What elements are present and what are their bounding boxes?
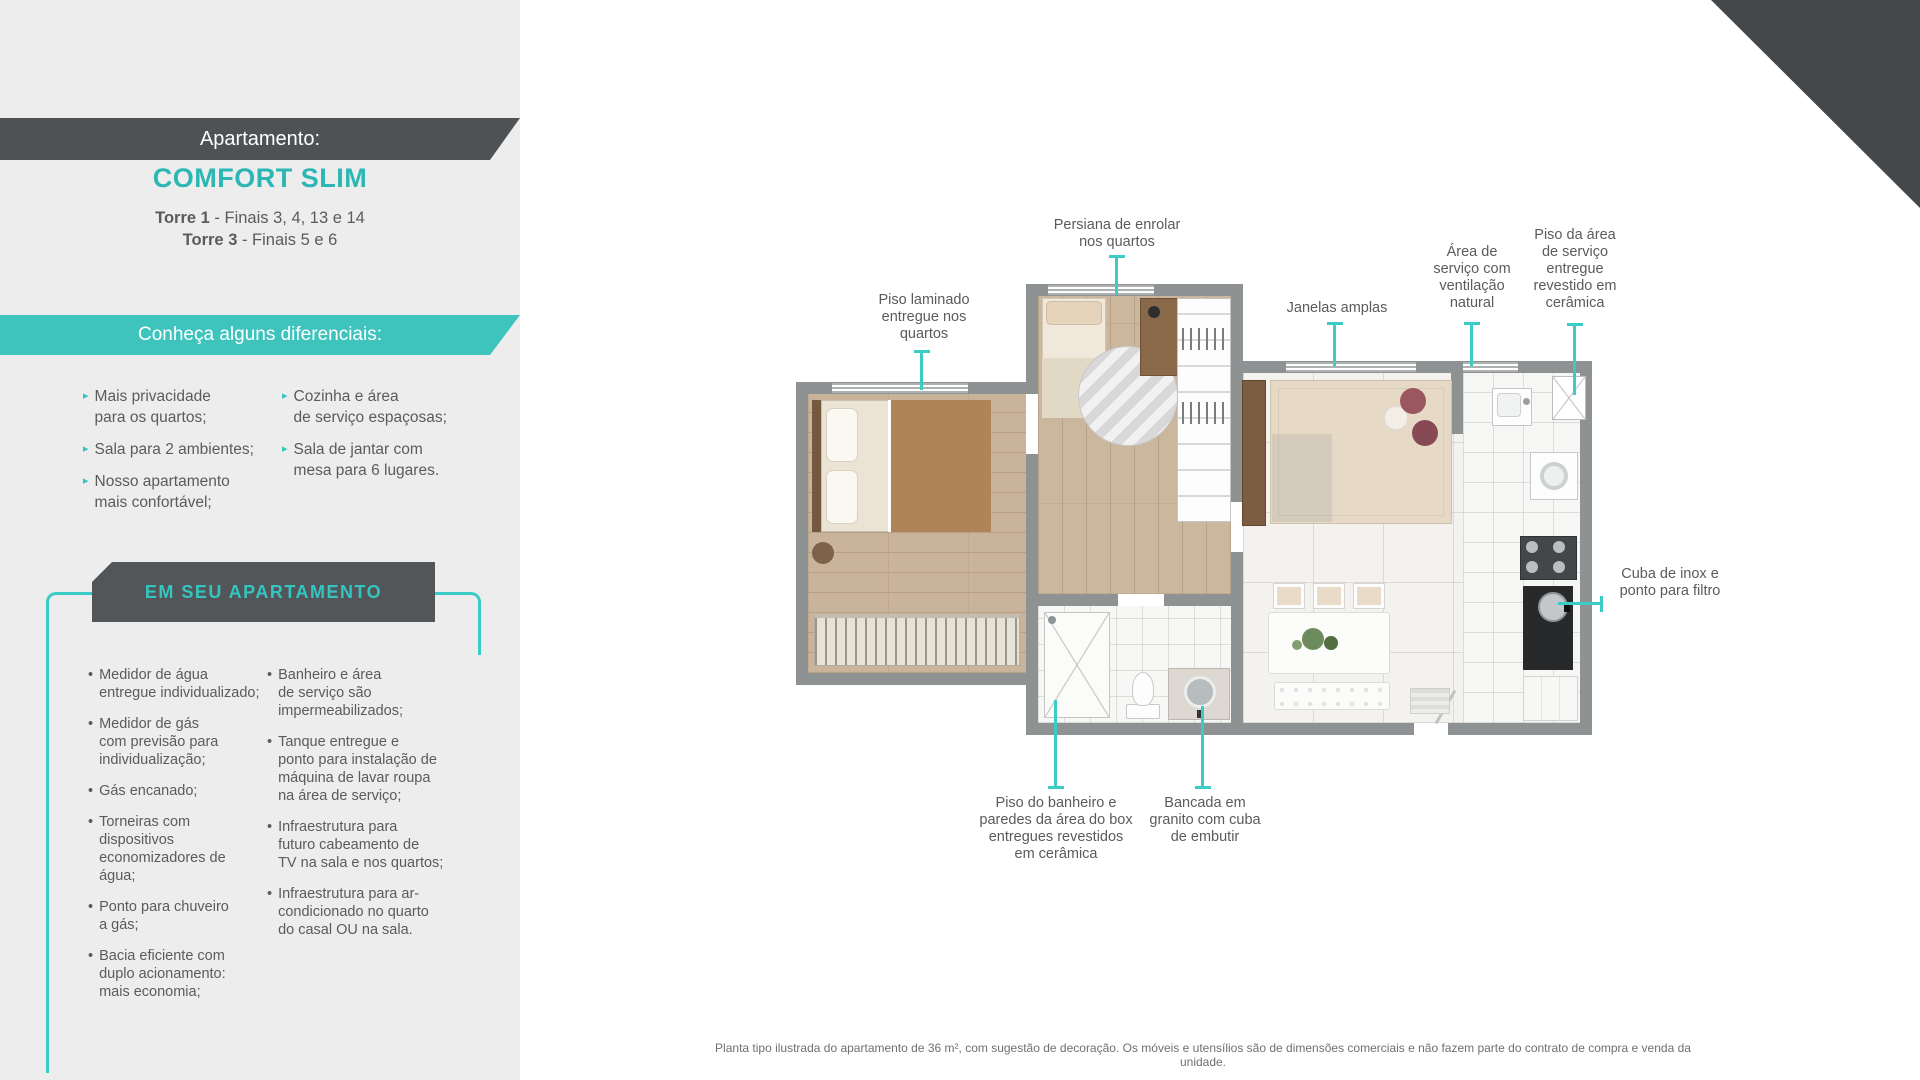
apartment-ribbon-label: Apartamento: xyxy=(200,128,320,150)
list-item-text: Nosso apartamento mais confortável; xyxy=(95,471,230,513)
arrow-bullet-icon: ▸ xyxy=(282,386,288,428)
wall xyxy=(1026,284,1038,394)
callout-pointer xyxy=(1333,322,1336,366)
apartment-title: COMFORT SLIM xyxy=(0,163,520,194)
list-item-text: Torneiras com dispositivos economizadore… xyxy=(99,813,260,885)
dining-chair xyxy=(1314,584,1344,608)
plant xyxy=(1302,628,1324,650)
vanity-basin xyxy=(1184,676,1216,708)
callout-cuba-inox: Cuba de inox e ponto para filtro xyxy=(1582,566,1758,600)
left-panel: Apartamento: COMFORT SLIM Torre 1 - Fina… xyxy=(0,0,520,1080)
bed-headboard xyxy=(812,400,821,532)
list-item: •Medidor de gás com previsão para indivi… xyxy=(88,715,260,769)
desk-lamp xyxy=(1148,306,1160,318)
list-item: •Gás encanado; xyxy=(88,782,260,800)
differentials-list-left: ▸Mais privacidade para os quartos; ▸Sala… xyxy=(83,386,273,524)
wall xyxy=(1026,723,1414,735)
dot-bullet-icon: • xyxy=(88,666,93,702)
differentials-ribbon: Conheça alguns diferenciais: xyxy=(0,315,520,355)
dot-bullet-icon: • xyxy=(88,813,93,885)
bracket-line-right xyxy=(435,592,481,655)
callout-pointer-cap xyxy=(1600,596,1603,612)
list-item-text: Tanque entregue e ponto para instalação … xyxy=(278,733,437,805)
list-item: •Infraestrutura para futuro cabeamento d… xyxy=(267,818,457,872)
dot-bullet-icon: • xyxy=(88,947,93,1001)
list-item-text: Sala de jantar com mesa para 6 lugares. xyxy=(294,439,440,481)
callout-pointer xyxy=(1054,700,1057,786)
list-item: ▸Cozinha e área de serviço espaçosas; xyxy=(282,386,462,428)
pillow xyxy=(1400,388,1426,414)
washer-door xyxy=(1540,462,1568,490)
burner xyxy=(1526,561,1538,573)
toilet-bowl xyxy=(1132,672,1154,706)
corner-triangle-decoration xyxy=(1711,0,1920,208)
pillow xyxy=(826,470,858,524)
list-item-text: Cozinha e área de serviço espaçosas; xyxy=(294,386,447,428)
burner xyxy=(1553,561,1565,573)
plant xyxy=(1324,636,1338,650)
callout-piso-area-servico: Piso da área de serviço entregue revesti… xyxy=(1505,227,1645,312)
list-item-text: Banheiro e área de serviço são impermeab… xyxy=(278,666,403,720)
throw-blanket xyxy=(1272,434,1332,522)
wall xyxy=(1448,723,1592,735)
tank-faucet xyxy=(1523,398,1530,405)
list-item: •Bacia eficiente com duplo acionamento: … xyxy=(88,947,260,1001)
page: Apartamento: COMFORT SLIM Torre 1 - Fina… xyxy=(0,0,1920,1080)
differentials-heading: Conheça alguns diferenciais: xyxy=(138,324,382,345)
dot-bullet-icon: • xyxy=(88,898,93,934)
list-item-text: Infraestrutura para futuro cabeamento de… xyxy=(278,818,443,872)
dot-bullet-icon: • xyxy=(267,885,272,939)
tower-info: Torre 1 - Finais 3, 4, 13 e 14 Torre 3 -… xyxy=(0,207,520,251)
tower-line-1: Torre 1 - Finais 3, 4, 13 e 14 xyxy=(0,207,520,229)
hangers xyxy=(1182,402,1226,424)
wall xyxy=(1231,594,1243,735)
callout-piso-laminado: Piso laminado entregue nos quartos xyxy=(834,292,1014,343)
list-item: •Banheiro e área de serviço são impermea… xyxy=(267,666,457,720)
dot-bullet-icon: • xyxy=(267,666,272,720)
callout-persiana: Persiana de enrolar nos quartos xyxy=(1017,217,1217,251)
callout-bancada: Bancada em granito com cuba de embutir xyxy=(1105,795,1305,846)
list-item: •Medidor de água entregue individualizad… xyxy=(88,666,260,702)
wall xyxy=(1038,594,1118,606)
list-item: •Ponto para chuveiro a gás; xyxy=(88,898,260,934)
pillow xyxy=(826,408,858,462)
window-bedroom2 xyxy=(1048,285,1154,295)
list-item: ▸Sala de jantar com mesa para 6 lugares. xyxy=(282,439,462,481)
list-item-text: Gás encanado; xyxy=(99,782,197,800)
list-item-text: Ponto para chuveiro a gás; xyxy=(99,898,229,934)
disclaimer-text: Planta tipo ilustrada do apartamento de … xyxy=(698,1041,1708,1069)
hangers xyxy=(1182,328,1226,350)
callout-pointer xyxy=(1470,322,1473,366)
list-item: •Torneiras com dispositivos economizador… xyxy=(88,813,260,885)
arrow-bullet-icon: ▸ xyxy=(83,386,89,428)
dining-chair xyxy=(1354,584,1384,608)
dot-bullet-icon: • xyxy=(88,782,93,800)
service-duct xyxy=(1552,376,1586,420)
callout-pointer xyxy=(1558,602,1600,605)
callout-pointer xyxy=(1573,323,1576,395)
dining-bench xyxy=(1274,682,1390,710)
apartment-features-box: EM SEU APARTAMENTO xyxy=(92,562,435,622)
dot-bullet-icon: • xyxy=(267,818,272,872)
side-table xyxy=(812,542,834,564)
wall xyxy=(1026,454,1038,735)
features-heading: EM SEU APARTAMENTO xyxy=(145,582,382,602)
burner xyxy=(1526,541,1538,553)
features-list-left: •Medidor de água entregue individualizad… xyxy=(88,666,260,1014)
list-item-text: Bacia eficiente com duplo acionamento: m… xyxy=(99,947,226,1001)
tv-console xyxy=(1242,380,1266,526)
kitchen-cabinet xyxy=(1523,676,1578,721)
tower-line-2: Torre 3 - Finais 5 e 6 xyxy=(0,229,520,251)
callout-pointer xyxy=(920,350,923,390)
list-item: ▸Mais privacidade para os quartos; xyxy=(83,386,273,428)
window-living xyxy=(1286,362,1416,372)
pillow xyxy=(1046,301,1102,325)
wall xyxy=(796,382,808,685)
closet-casal xyxy=(814,614,1020,666)
callout-pointer-cap xyxy=(1195,786,1211,789)
list-item: ▸Sala para 2 ambientes; xyxy=(83,439,273,460)
callout-pointer xyxy=(1201,706,1204,786)
apartment-ribbon: Apartamento: xyxy=(0,118,520,160)
window-service xyxy=(1460,362,1518,372)
doormat xyxy=(1410,688,1450,714)
dining-chair xyxy=(1274,584,1304,608)
blanket xyxy=(888,400,991,532)
list-item-text: Sala para 2 ambientes; xyxy=(95,439,254,460)
list-item-text: Mais privacidade para os quartos; xyxy=(95,386,211,428)
plant xyxy=(1292,640,1302,650)
callout-pointer xyxy=(1115,255,1118,295)
list-item-text: Medidor de gás com previsão para individ… xyxy=(99,715,218,769)
tank-basin xyxy=(1497,393,1521,417)
wall xyxy=(1451,361,1463,434)
differentials-list-right: ▸Cozinha e área de serviço espaçosas; ▸S… xyxy=(282,386,462,492)
shower-head xyxy=(1048,616,1056,624)
window-bedroom-casal xyxy=(832,383,968,393)
toilet-tank xyxy=(1126,704,1160,719)
list-item: •Tanque entregue e ponto para instalação… xyxy=(267,733,457,805)
callout-janelas: Janelas amplas xyxy=(1257,300,1417,317)
burner xyxy=(1553,541,1565,553)
dot-bullet-icon: • xyxy=(267,733,272,805)
pillow xyxy=(1412,420,1438,446)
list-item: •Infraestrutura para ar- condicionado no… xyxy=(267,885,457,939)
wall xyxy=(796,673,1038,685)
arrow-bullet-icon: ▸ xyxy=(83,439,89,460)
list-item-text: Medidor de água entregue individualizado… xyxy=(99,666,259,702)
list-item-text: Infraestrutura para ar- condicionado no … xyxy=(278,885,429,939)
list-item: ▸Nosso apartamento mais confortável; xyxy=(83,471,273,513)
arrow-bullet-icon: ▸ xyxy=(83,471,89,513)
features-list-right: •Banheiro e área de serviço são impermea… xyxy=(267,666,457,952)
callout-pointer-cap xyxy=(1048,786,1064,789)
dot-bullet-icon: • xyxy=(88,715,93,769)
arrow-bullet-icon: ▸ xyxy=(282,439,288,481)
